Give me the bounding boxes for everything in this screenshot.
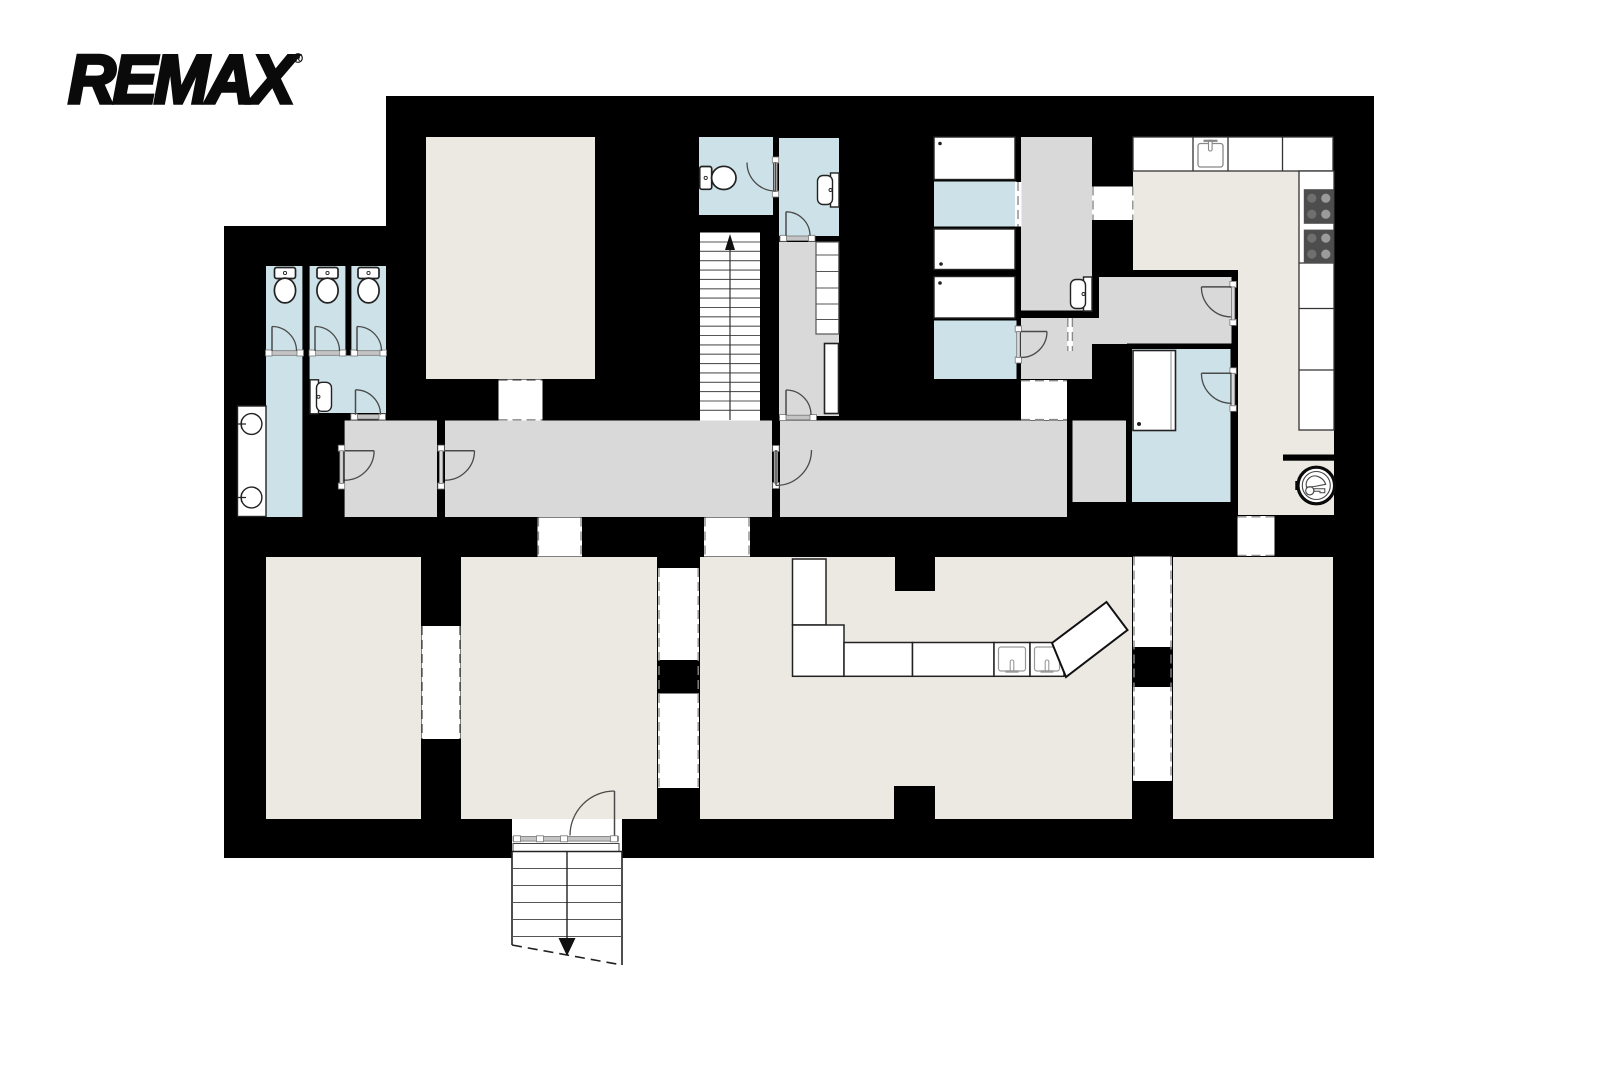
svg-text:REMAX: REMAX — [68, 41, 299, 118]
svg-text:R: R — [295, 56, 300, 63]
